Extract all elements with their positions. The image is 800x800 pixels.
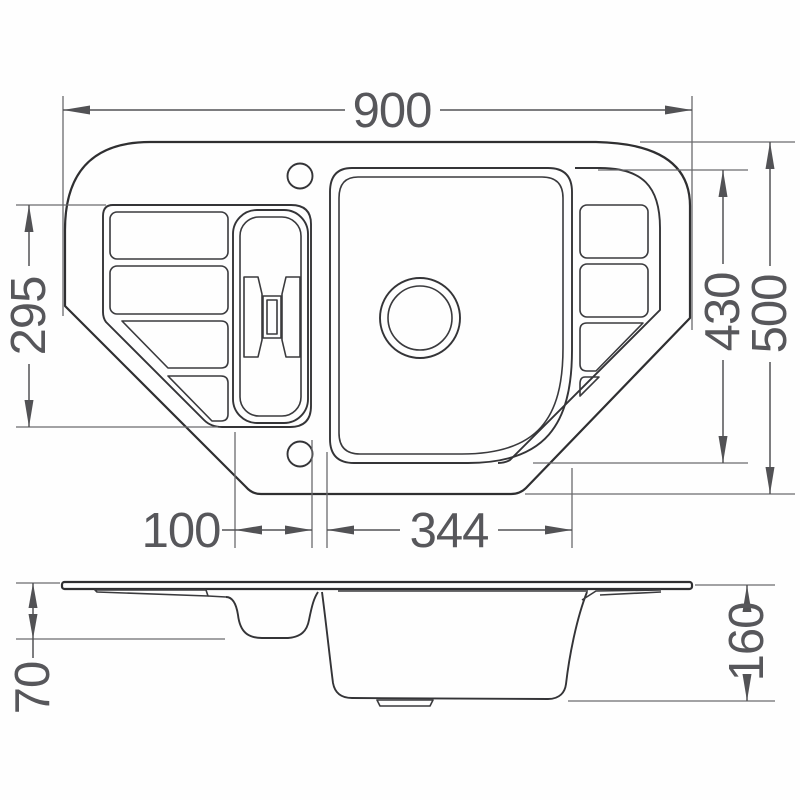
- dim-half-bowl-depth: 70: [6, 583, 225, 714]
- strainer-right-flange: [282, 277, 300, 357]
- drainer-ribs-right: [580, 205, 648, 396]
- sink-outline: [65, 142, 690, 494]
- dim-overall-depth: 500: [525, 142, 797, 494]
- tap-hole-bottom: [288, 442, 313, 467]
- main-bowl: [330, 168, 572, 463]
- side-right-lip: [582, 590, 661, 600]
- rib-left-2: [110, 266, 228, 314]
- left-drainer-boundary: [103, 205, 311, 427]
- sink-technical-drawing: 900 295 430 500: [0, 0, 800, 800]
- dim-label-half-bowl-width: 100: [142, 504, 221, 558]
- drain-hole-inner: [388, 286, 452, 350]
- technical-drawing-page: 900 295 430 500: [0, 0, 800, 800]
- half-bowl-strainer: [244, 277, 300, 357]
- drainer-ribs-left: [110, 212, 228, 421]
- dim-label-left-drainer-depth: 295: [2, 277, 56, 356]
- dim-label-main-bowl-depth: 160: [720, 603, 774, 682]
- dimensions: 900 295 430 500: [2, 84, 797, 714]
- side-view: [62, 582, 692, 706]
- main-bowl-outer-rim: [330, 168, 572, 463]
- dim-label-overall-depth: 500: [743, 275, 797, 354]
- dim-label-bowl-zone-height: 430: [696, 273, 750, 352]
- rib-right-1: [580, 205, 648, 258]
- dim-label-half-bowl-depth: 70: [6, 662, 60, 715]
- rib-right-2: [580, 264, 648, 317]
- half-bowl-inner-rim: [240, 217, 301, 416]
- dim-main-bowl-depth: 160: [568, 585, 775, 701]
- dim-main-bowl-width: 344: [327, 452, 572, 558]
- main-bowl-inner-rim: [339, 177, 563, 454]
- rib-right-3: [580, 323, 643, 371]
- strainer-center-outer: [263, 296, 281, 338]
- plan-view: [65, 142, 690, 494]
- side-drain-boss: [377, 700, 433, 706]
- right-drainer-boundary: [498, 168, 660, 463]
- side-main-bowl: [322, 592, 587, 699]
- strainer-left-flange: [244, 277, 262, 357]
- dim-label-main-bowl-width: 344: [410, 504, 489, 558]
- rib-left-3: [122, 321, 228, 368]
- side-right-lip-lower: [600, 592, 661, 595]
- strainer-center-inner: [267, 300, 277, 334]
- tap-hole-top: [288, 164, 313, 189]
- side-half-bowl: [226, 592, 318, 638]
- worktop-slab: [62, 582, 692, 589]
- drain-hole-outer: [380, 278, 460, 358]
- side-deck-step: [208, 596, 226, 597]
- dim-overall-width: 900: [63, 84, 692, 330]
- side-left-lip: [95, 590, 208, 596]
- rib-left-1: [110, 212, 228, 259]
- dim-label-overall-width: 900: [353, 84, 432, 138]
- half-bowl: [233, 210, 308, 423]
